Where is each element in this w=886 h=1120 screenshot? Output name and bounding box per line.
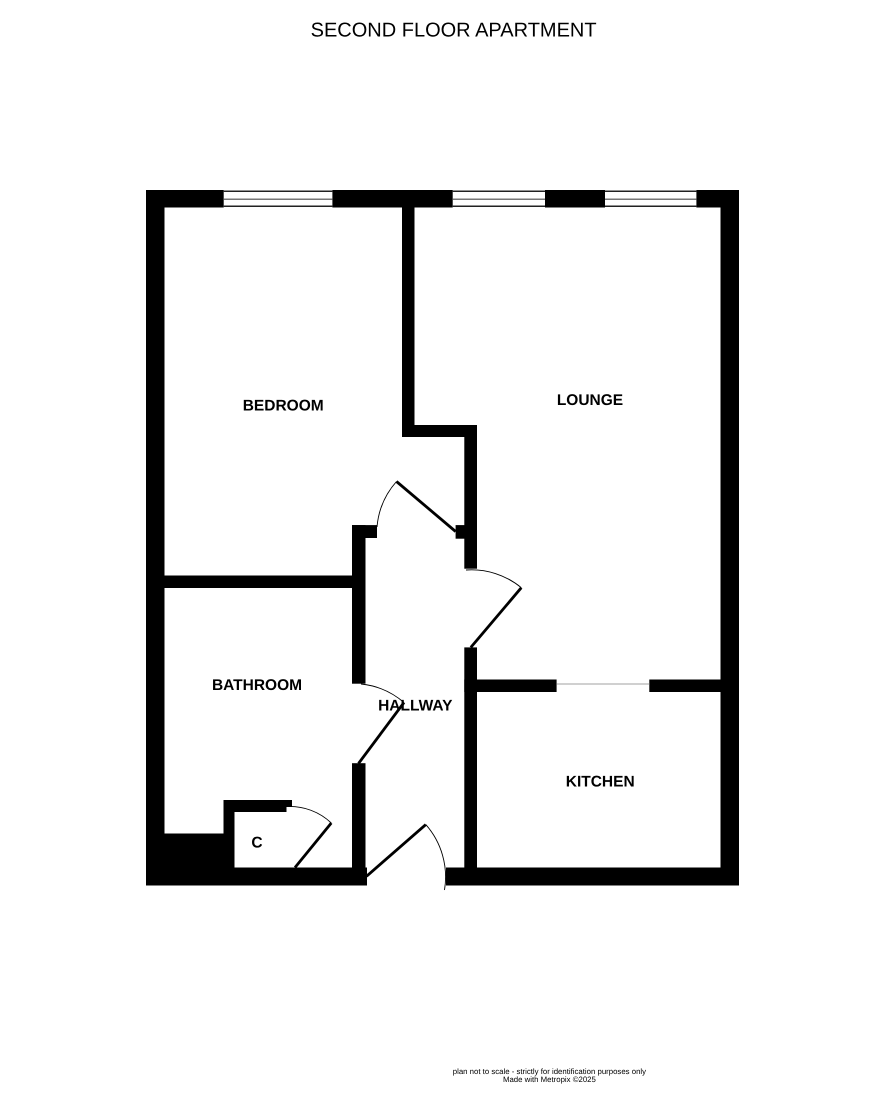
svg-text:LOUNGE: LOUNGE [557,392,623,409]
svg-text:BEDROOM: BEDROOM [243,398,324,415]
svg-text:HALLWAY: HALLWAY [378,698,453,715]
svg-text:SECOND FLOOR APARTMENT: SECOND FLOOR APARTMENT [311,19,597,41]
svg-text:KITCHEN: KITCHEN [566,773,635,790]
svg-text:C: C [251,834,262,851]
svg-text:BATHROOM: BATHROOM [212,677,302,694]
svg-text:Made with Metropix ©2025: Made with Metropix ©2025 [503,1075,597,1084]
